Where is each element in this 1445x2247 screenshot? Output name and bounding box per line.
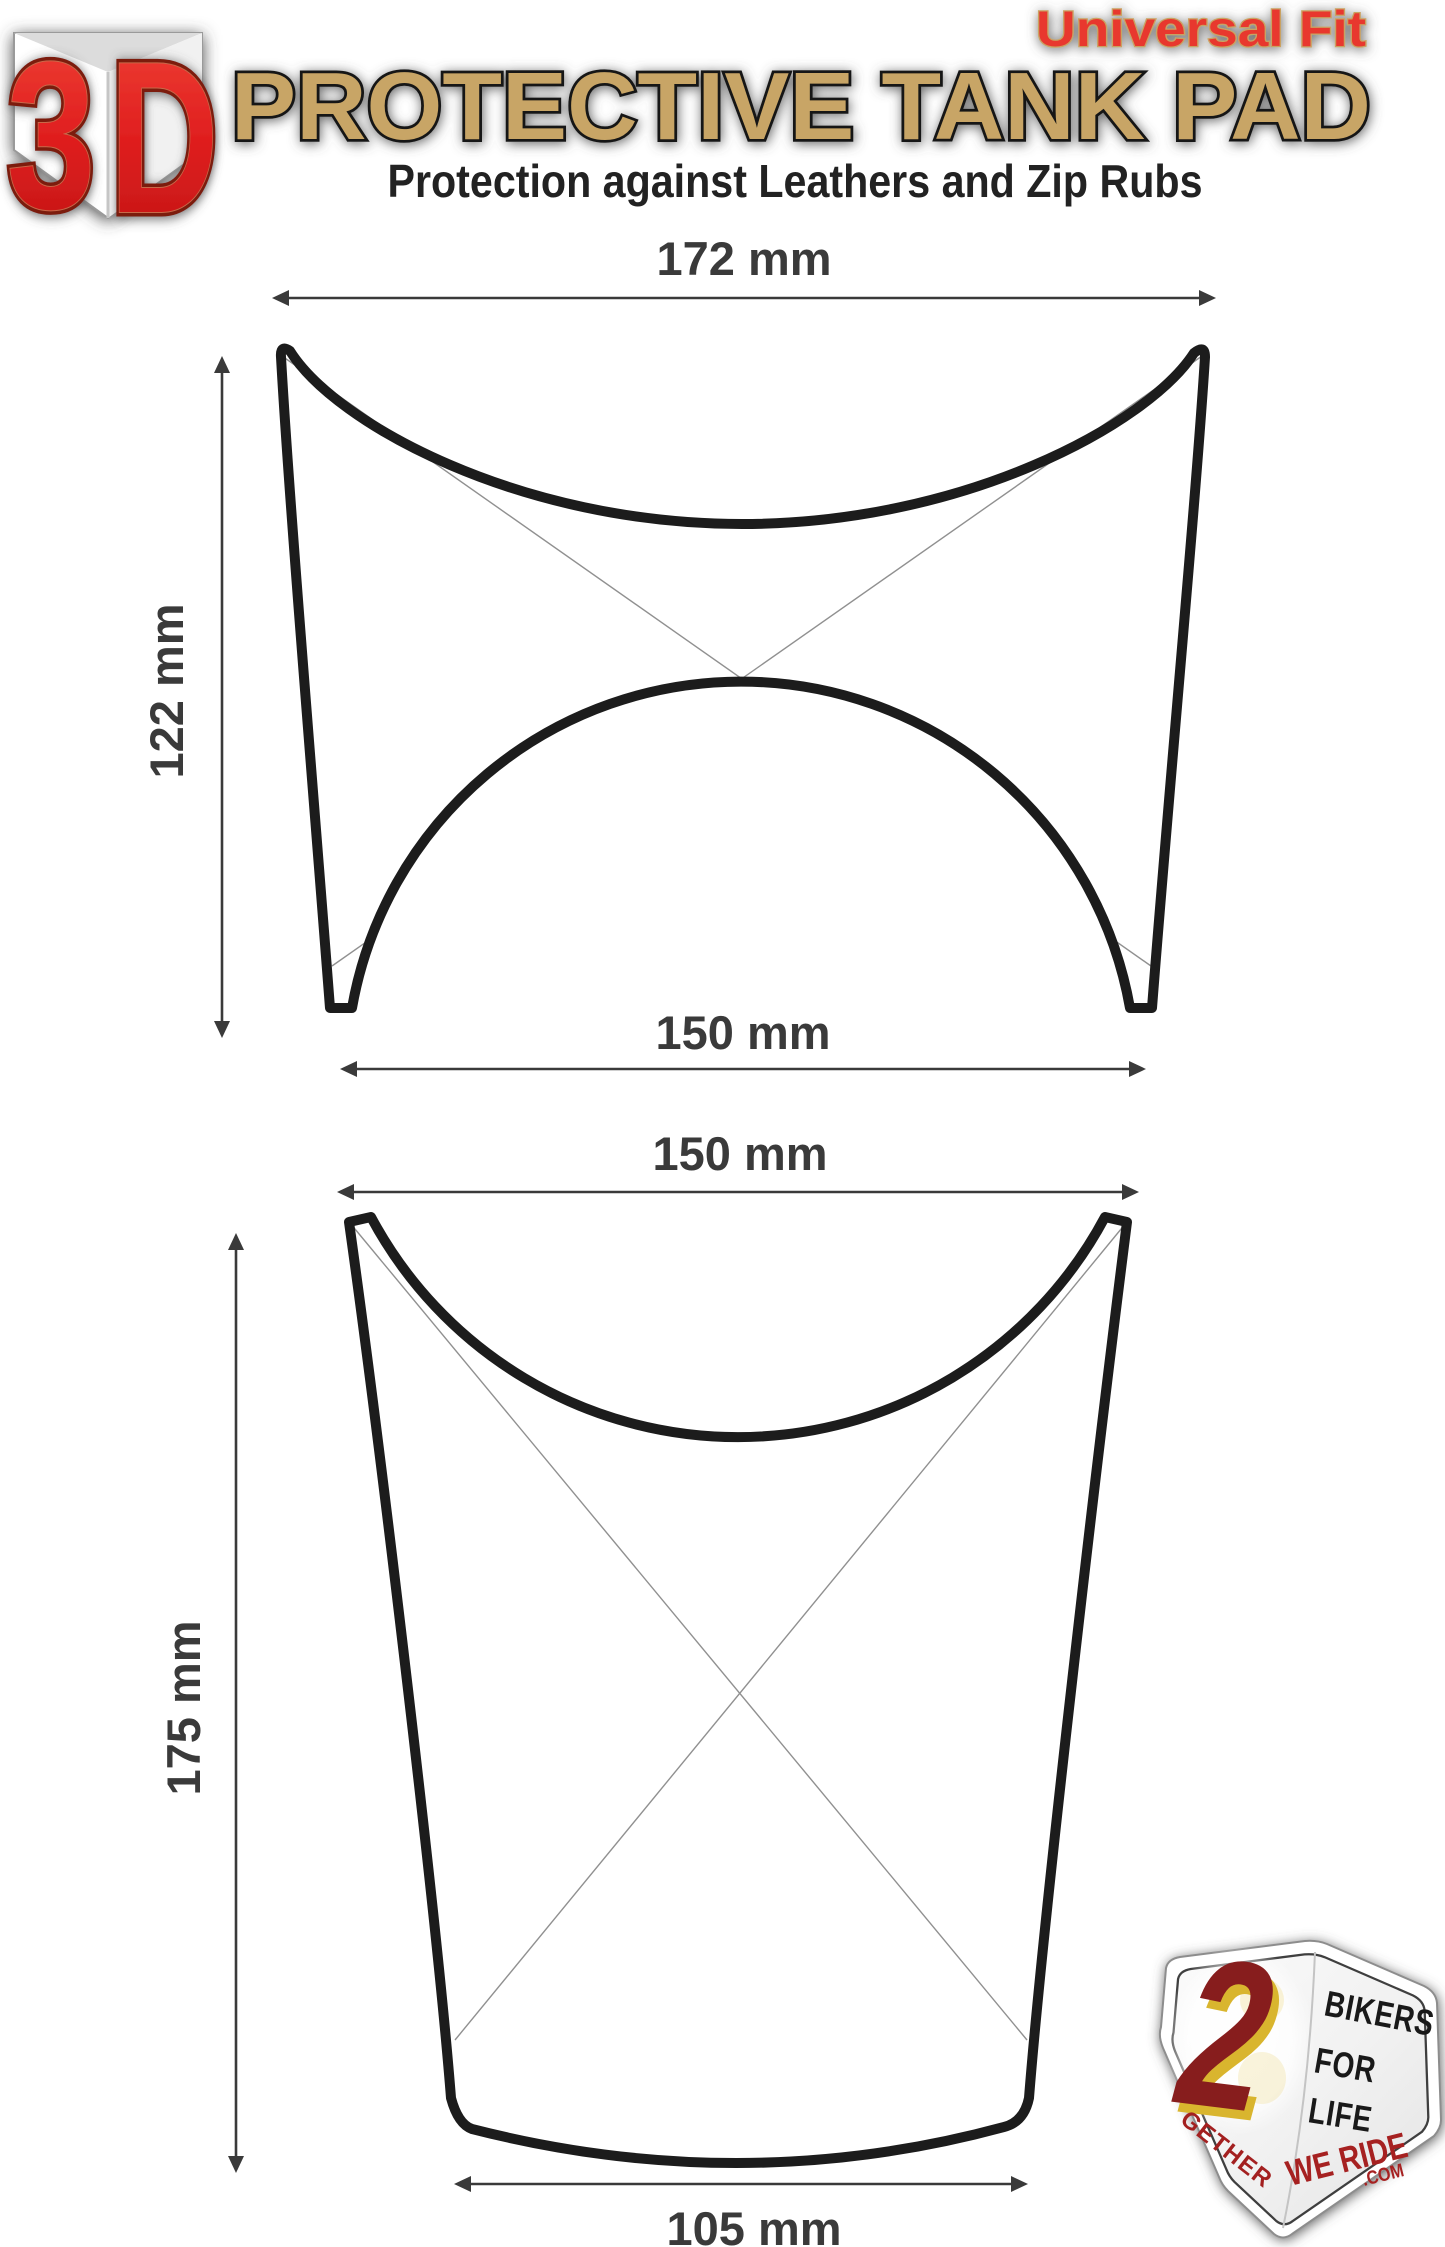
svg-text:PROTECTIVE TANK PAD: PROTECTIVE TANK PAD	[231, 53, 1371, 160]
svg-text:105 mm: 105 mm	[666, 2202, 841, 2247]
svg-text:3: 3	[7, 18, 96, 253]
svg-text:122 mm: 122 mm	[140, 603, 193, 778]
svg-text:150 mm: 150 mm	[652, 1127, 827, 1180]
svg-text:Protection against Leathers an: Protection against Leathers and Zip Rubs	[388, 155, 1203, 207]
svg-text:D: D	[109, 16, 218, 258]
svg-text:172 mm: 172 mm	[656, 232, 831, 285]
svg-text:150 mm: 150 mm	[655, 1006, 830, 1059]
svg-text:175 mm: 175 mm	[157, 1620, 210, 1795]
svg-text:Universal Fit: Universal Fit	[1036, 1, 1366, 57]
